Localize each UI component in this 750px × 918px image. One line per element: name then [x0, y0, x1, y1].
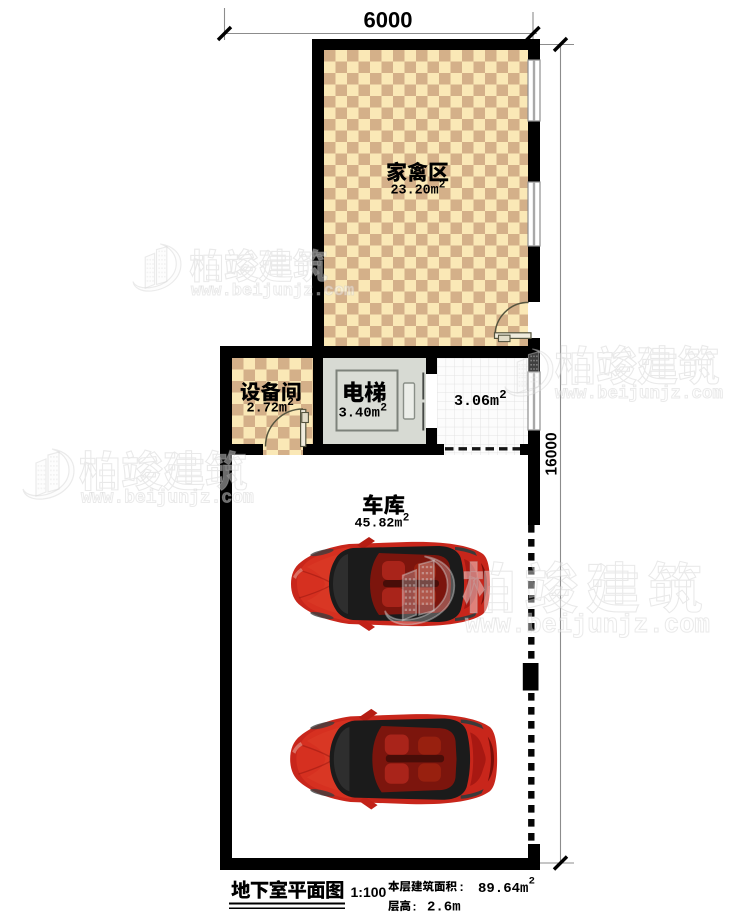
svg-text:www.beijunjz.com: www.beijunjz.com	[81, 489, 254, 509]
svg-text:3.40m: 3.40m	[339, 407, 380, 422]
svg-text:2: 2	[439, 180, 446, 192]
svg-text:3.06m: 3.06m	[454, 393, 499, 410]
svg-text:2.6m: 2.6m	[427, 900, 461, 916]
svg-text:1:100: 1:100	[351, 884, 387, 900]
svg-text::: :	[460, 880, 464, 894]
svg-text:2.72m: 2.72m	[247, 401, 288, 416]
svg-text:23.20m: 23.20m	[391, 184, 439, 199]
svg-text:16000: 16000	[544, 432, 561, 475]
svg-text:89.64m: 89.64m	[478, 881, 528, 897]
svg-text:6000: 6000	[364, 8, 413, 33]
svg-text:www.beijunjz.com: www.beijunjz.com	[465, 611, 710, 640]
svg-text::: :	[413, 900, 417, 914]
svg-text:2: 2	[499, 388, 506, 402]
svg-text:2: 2	[529, 876, 535, 888]
svg-text:2: 2	[403, 513, 410, 525]
svg-text:www.beijunjz.com: www.beijunjz.com	[191, 282, 354, 301]
svg-text:2: 2	[380, 402, 387, 414]
svg-text:2: 2	[287, 397, 294, 409]
svg-text:45.82m: 45.82m	[355, 516, 403, 531]
svg-text:www.beijunjz.com: www.beijunjz.com	[555, 384, 723, 404]
